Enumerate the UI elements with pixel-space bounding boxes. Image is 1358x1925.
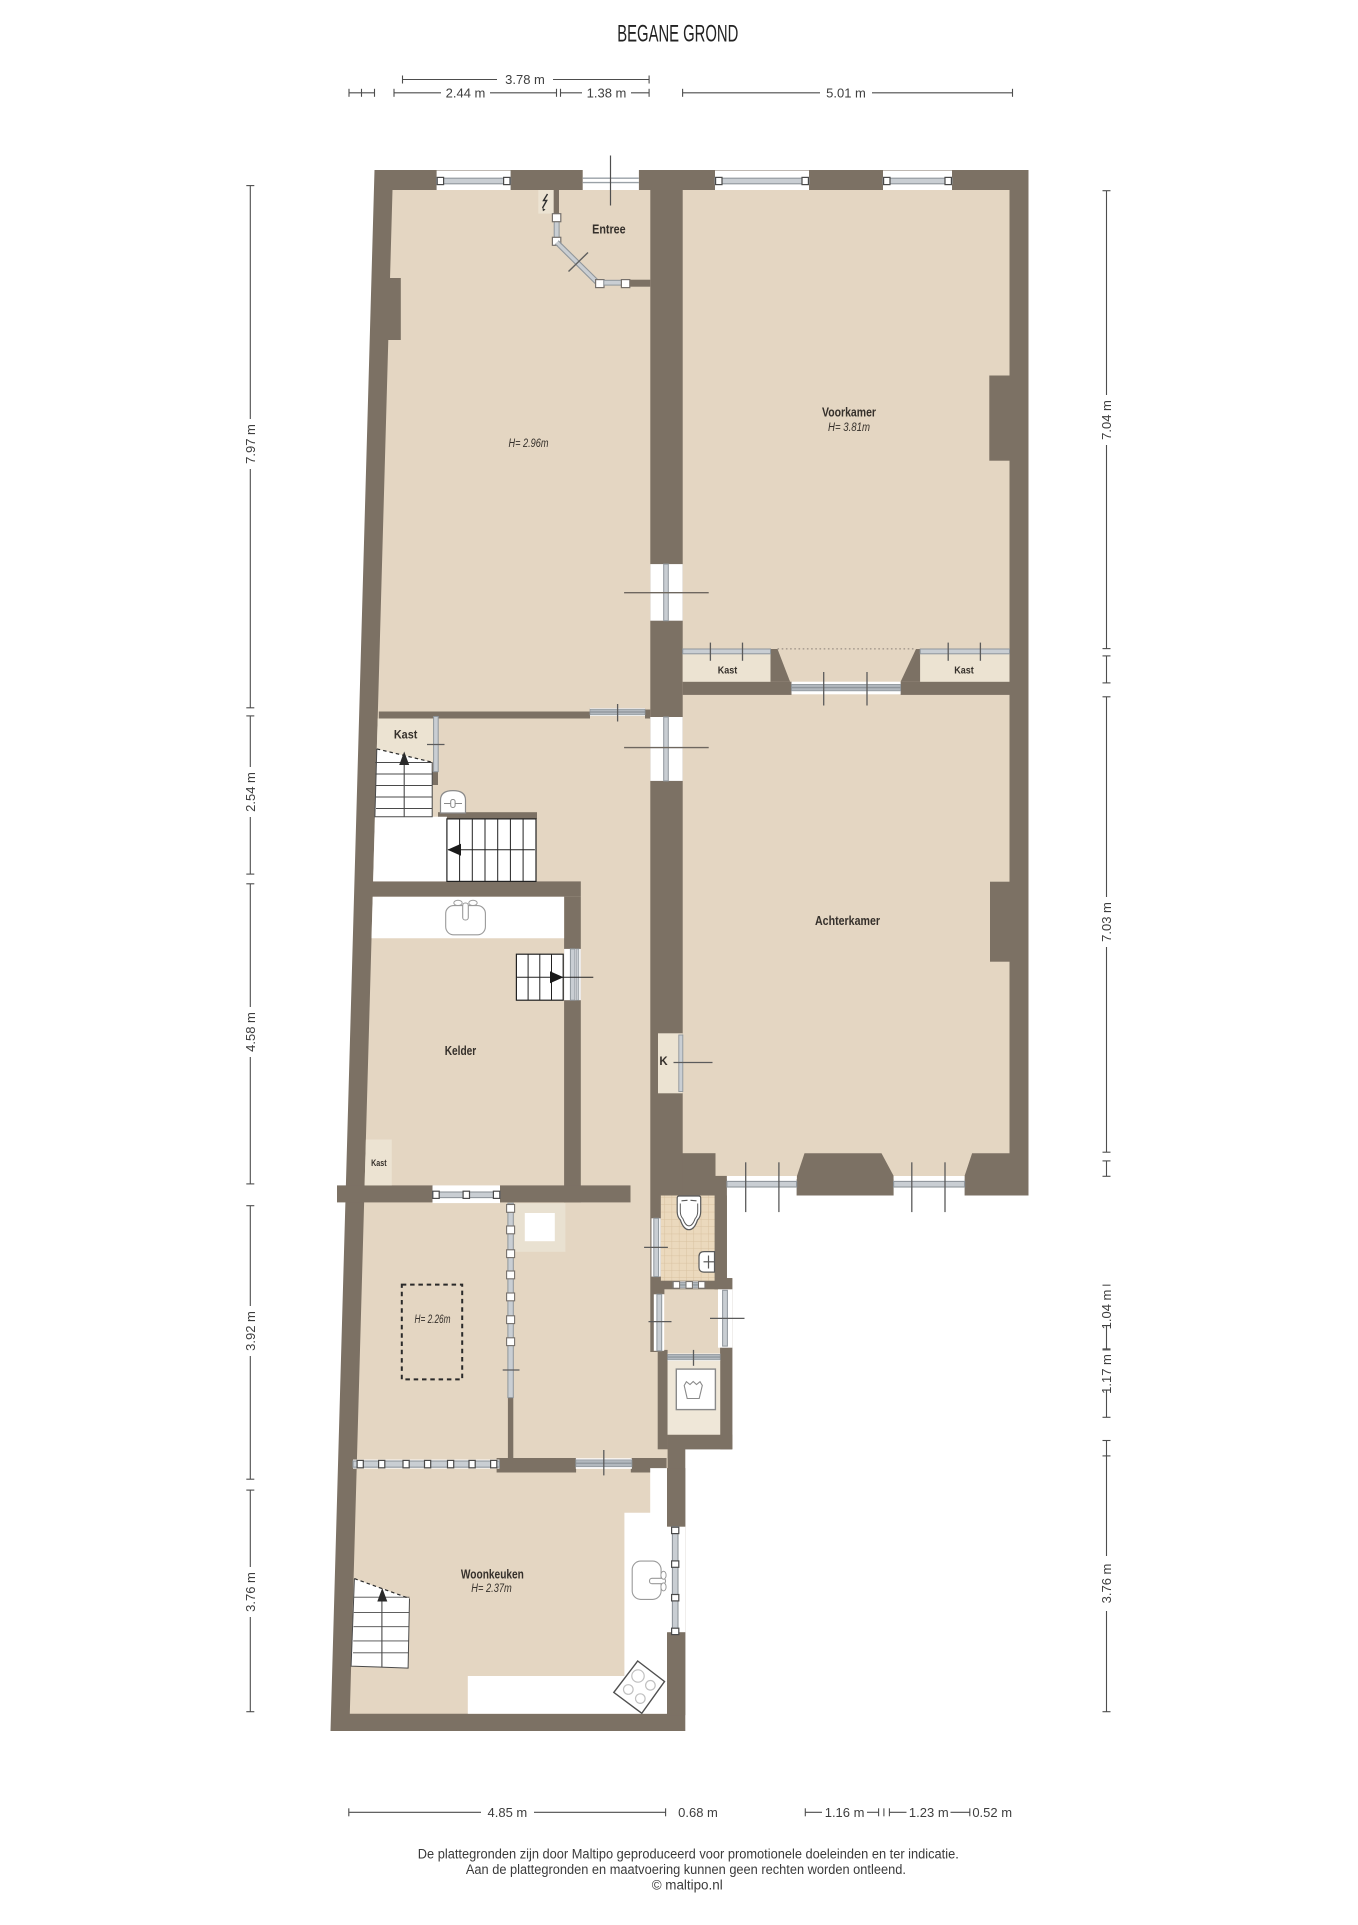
svg-text:4.58 m: 4.58 m (243, 1012, 258, 1052)
svg-text:K: K (659, 1056, 668, 1068)
svg-text:Kast: Kast (718, 665, 738, 677)
svg-text:3.78 m: 3.78 m (505, 72, 545, 87)
svg-text:2.44 m: 2.44 m (446, 85, 486, 100)
svg-text:4.85 m: 4.85 m (488, 1805, 528, 1820)
svg-text:3.76 m: 3.76 m (1099, 1564, 1114, 1604)
svg-text:0.68 m: 0.68 m (678, 1805, 718, 1820)
svg-text:De plattegronden zijn door Mal: De plattegronden zijn door Maltipo gepro… (418, 1847, 959, 1862)
svg-text:© maltipo.nl: © maltipo.nl (652, 1878, 723, 1893)
svg-text:Aan de plattegronden en maatvo: Aan de plattegronden en maatvoering kunn… (466, 1862, 906, 1877)
svg-text:H= 3.81m: H= 3.81m (828, 422, 870, 434)
svg-text:3.92 m: 3.92 m (243, 1311, 258, 1351)
svg-text:H= 2.96m: H= 2.96m (509, 438, 549, 450)
svg-text:0.52 m: 0.52 m (972, 1805, 1012, 1820)
svg-text:7.03 m: 7.03 m (1099, 902, 1114, 942)
svg-text:3.76 m: 3.76 m (243, 1572, 258, 1612)
svg-text:5.01 m: 5.01 m (826, 85, 866, 100)
svg-text:Voorkamer: Voorkamer (822, 406, 876, 420)
svg-text:1.38 m: 1.38 m (587, 85, 627, 100)
svg-text:7.97 m: 7.97 m (243, 424, 258, 464)
svg-text:Kast: Kast (394, 728, 418, 742)
svg-text:BEGANE GROND: BEGANE GROND (617, 21, 738, 48)
svg-text:Achterkamer: Achterkamer (815, 914, 880, 928)
svg-text:Kast: Kast (371, 1158, 387, 1168)
svg-text:Kast: Kast (954, 665, 974, 677)
svg-text:1.23 m: 1.23 m (909, 1805, 949, 1820)
svg-text:1.16 m: 1.16 m (825, 1805, 865, 1820)
svg-text:H= 2.26m: H= 2.26m (415, 1314, 451, 1326)
svg-text:1.17 m: 1.17 m (1099, 1354, 1114, 1394)
svg-text:2.54 m: 2.54 m (243, 772, 258, 812)
svg-text:H= 2.37m: H= 2.37m (471, 1583, 512, 1595)
svg-text:Woonkeuken: Woonkeuken (461, 1568, 524, 1582)
svg-text:1.04 m: 1.04 m (1099, 1290, 1114, 1330)
svg-text:Kelder: Kelder (445, 1044, 477, 1058)
svg-text:7.04 m: 7.04 m (1099, 400, 1114, 440)
svg-text:Entree: Entree (592, 223, 626, 237)
